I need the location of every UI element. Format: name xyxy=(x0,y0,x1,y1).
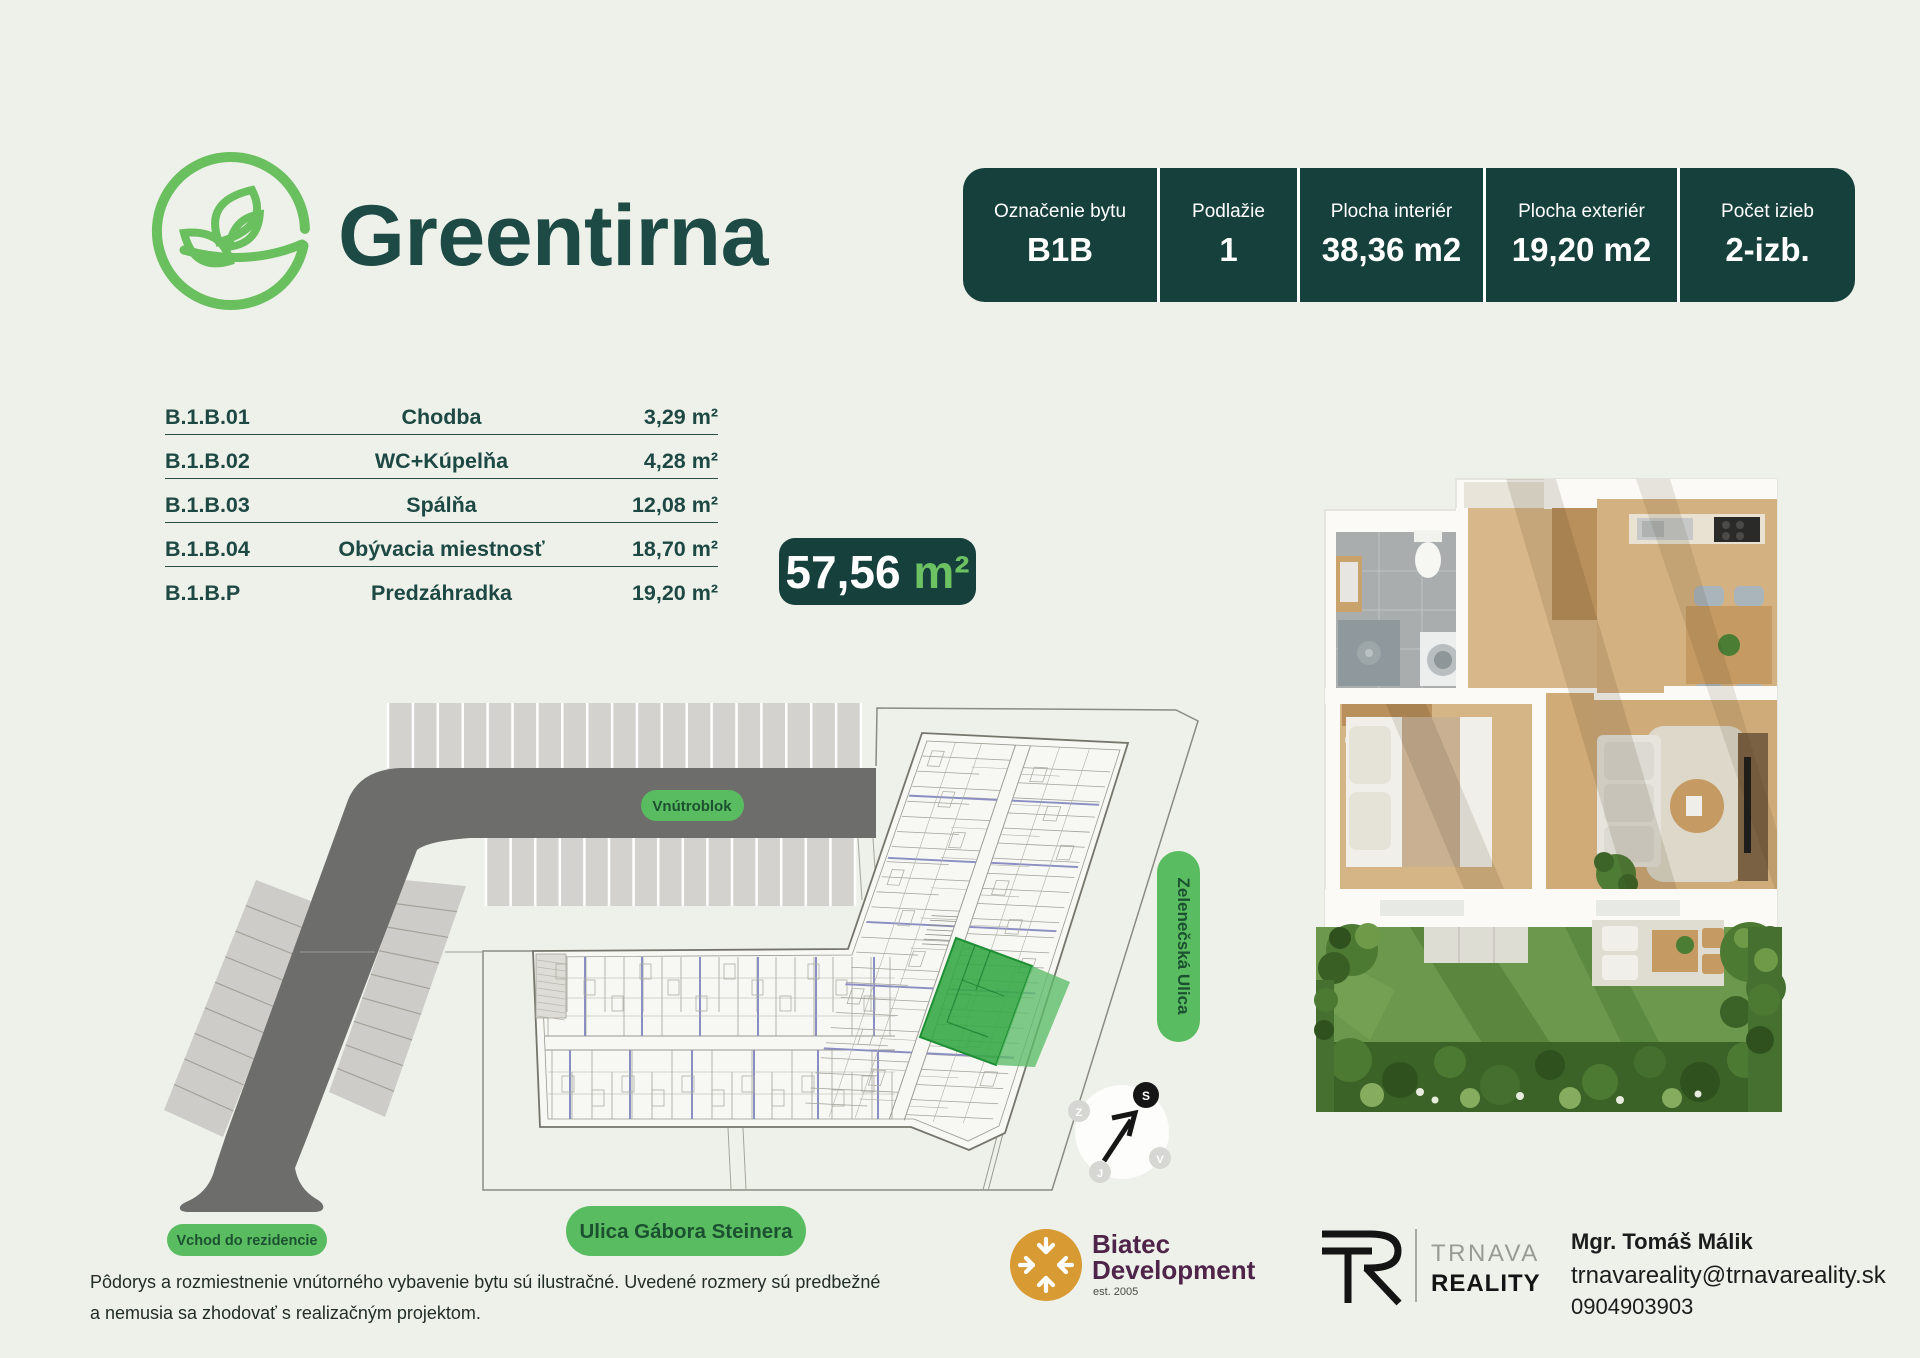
svg-text:S: S xyxy=(1142,1089,1150,1103)
svg-text:J: J xyxy=(1097,1168,1103,1180)
svg-text:V: V xyxy=(1156,1154,1164,1166)
svg-text:Vchod do rezidencie: Vchod do rezidencie xyxy=(177,1233,318,1249)
svg-text:Vnútroblok: Vnútroblok xyxy=(652,798,732,815)
svg-text:Z: Z xyxy=(1076,1107,1083,1119)
svg-text:Zelenečská Ulica: Zelenečská Ulica xyxy=(1174,877,1193,1015)
svg-text:Ulica Gábora Steinera: Ulica Gábora Steinera xyxy=(579,1220,793,1243)
